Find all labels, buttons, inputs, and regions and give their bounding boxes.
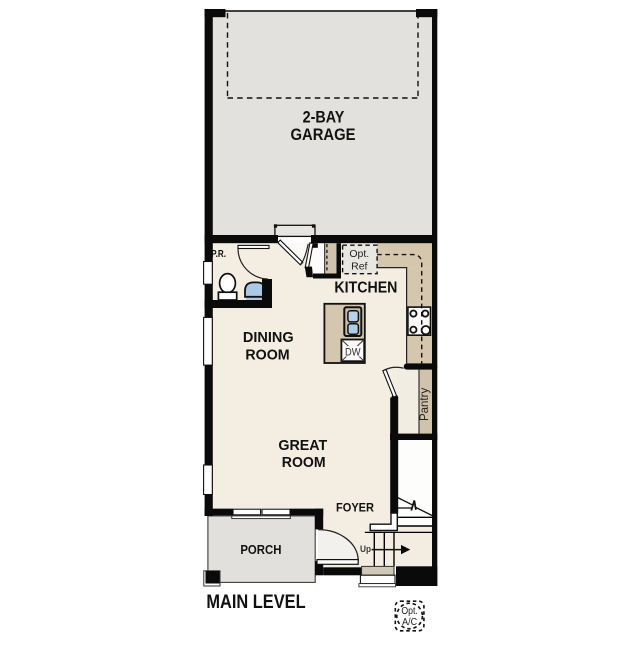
svg-text:FOYER: FOYER [336, 503, 375, 515]
svg-text:KITCHEN: KITCHEN [334, 280, 397, 297]
svg-text:ROOM: ROOM [245, 346, 289, 363]
svg-text:DINING: DINING [243, 329, 294, 346]
svg-text:Pantry: Pantry [419, 388, 431, 421]
svg-text:Up: Up [360, 544, 371, 555]
svg-text:2-BAY: 2-BAY [303, 107, 345, 126]
svg-text:A/C: A/C [402, 617, 417, 628]
svg-text:MAIN LEVEL: MAIN LEVEL [206, 592, 306, 613]
svg-text:ROOM: ROOM [282, 454, 326, 471]
svg-text:P.R.: P.R. [211, 249, 226, 260]
svg-text:DW: DW [345, 347, 361, 359]
svg-text:PORCH: PORCH [240, 542, 281, 557]
svg-text:Opt.: Opt. [349, 248, 369, 260]
svg-text:Ref: Ref [351, 261, 367, 273]
svg-text:GREAT: GREAT [278, 437, 327, 454]
svg-text:Opt.: Opt. [401, 606, 418, 617]
svg-text:GARAGE: GARAGE [291, 125, 356, 144]
